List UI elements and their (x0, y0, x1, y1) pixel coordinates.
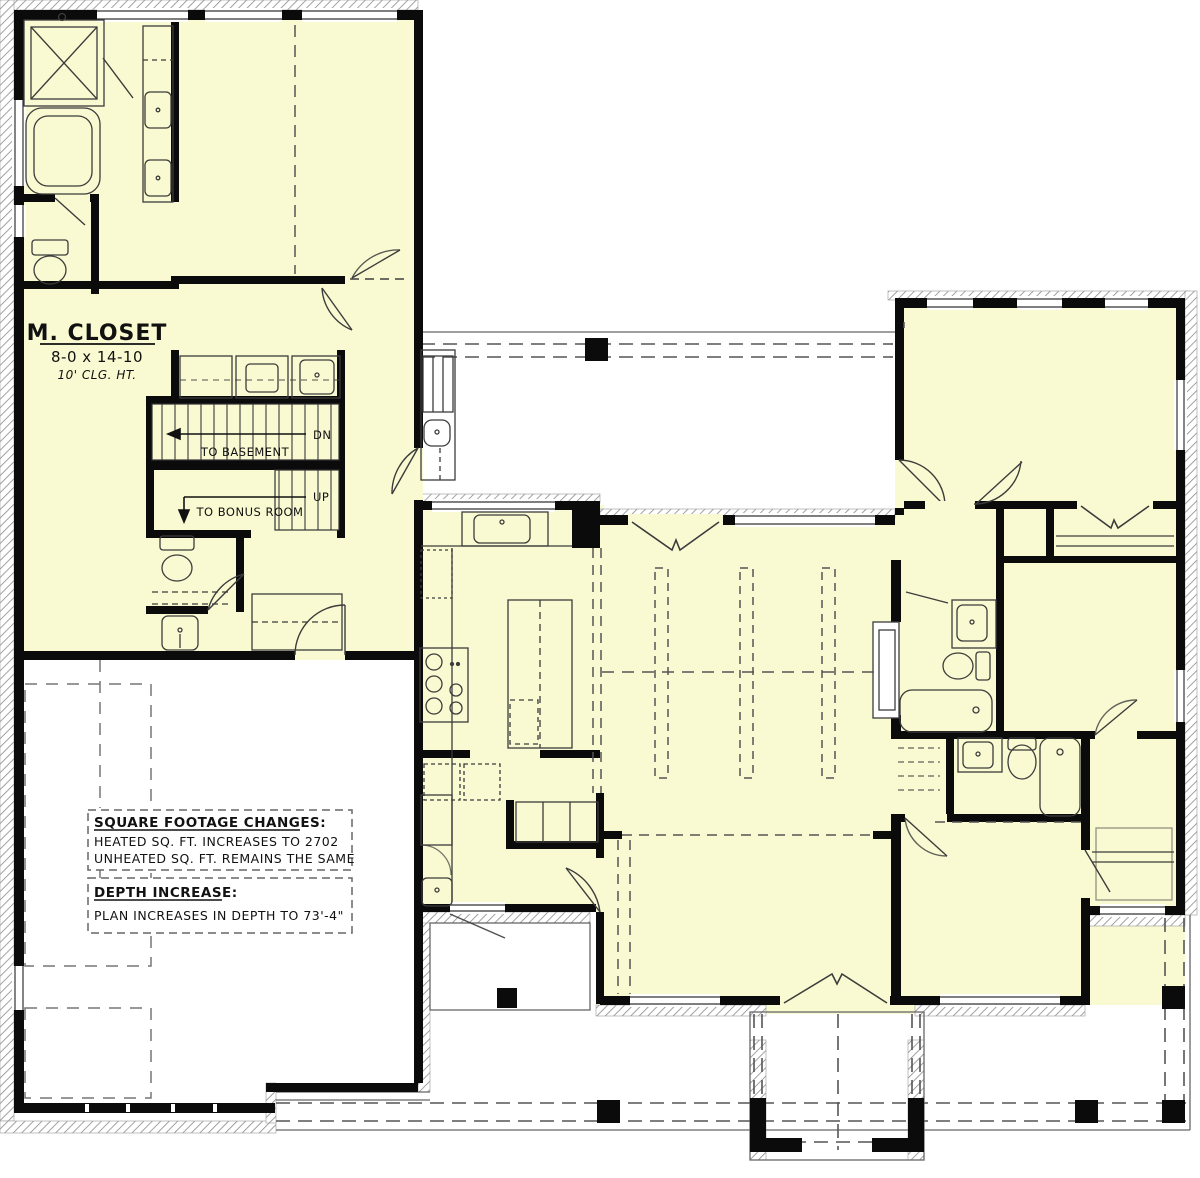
side-porch-column (497, 988, 517, 1008)
depth-note-line1: PLAN INCREASES IN DEPTH TO 73'-4" (94, 908, 344, 923)
m-closet-ceiling: 10' CLG. HT. (57, 368, 136, 382)
stair-dn-label: DN (313, 428, 331, 442)
m-closet-name: M. CLOSET (27, 321, 168, 346)
sqft-note-line2: UNHEATED SQ. FT. REMAINS THE SAME (94, 851, 355, 866)
sqft-note-title: SQUARE FOOTAGE CHANGES: (94, 815, 326, 831)
entry-stoop-walls (750, 1098, 924, 1152)
depth-note-title: DEPTH INCREASE: (94, 885, 238, 901)
floor-plan-svg: SQUARE FOOTAGE CHANGES: HEATED SQ. FT. I… (0, 0, 1200, 1178)
front-porch-column-left (597, 1100, 620, 1123)
fireplace (873, 622, 899, 718)
note-boxes: SQUARE FOOTAGE CHANGES: HEATED SQ. FT. I… (88, 810, 355, 933)
front-porch-column-corner (1162, 1100, 1185, 1123)
front-porch-column-right (1075, 1100, 1098, 1123)
stair-bonus-label: TO BONUS ROOM (196, 505, 304, 519)
stair-up-label: UP (313, 490, 329, 504)
rear-porch-column (585, 338, 608, 361)
outdoor-kitchen (421, 350, 455, 480)
sqft-note-line1: HEATED SQ. FT. INCREASES TO 2702 (94, 834, 339, 849)
stairs-to-bonus (275, 470, 339, 530)
stair-basement-label: TO BASEMENT (200, 445, 290, 459)
m-closet-dims: 8-0 x 14-10 (51, 348, 143, 366)
east-porch-column (1162, 986, 1185, 1009)
parking-space-2 (25, 1008, 151, 1098)
floor-plan-page: SQUARE FOOTAGE CHANGES: HEATED SQ. FT. I… (0, 0, 1200, 1178)
